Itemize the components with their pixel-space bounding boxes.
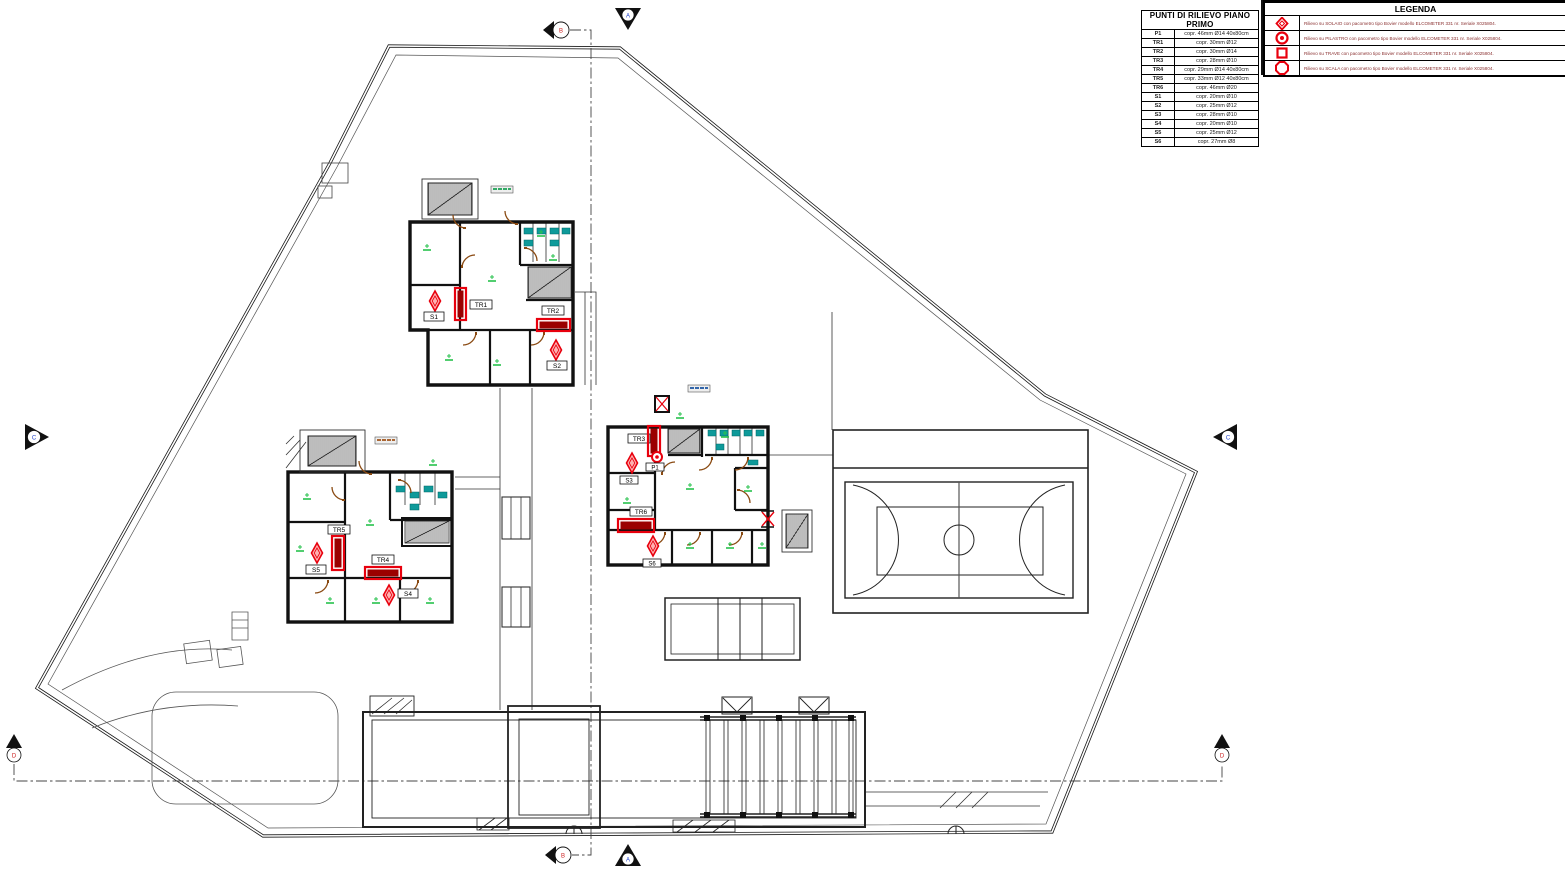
svg-text:D: D [12, 754, 17, 760]
tr2-label: TR2 [547, 308, 560, 315]
section-marker-d-right: D [1214, 734, 1230, 762]
s6-label: S6 [648, 562, 656, 568]
tr6-label: TR6 [635, 509, 648, 516]
legend-item-text: Rilievo su PILASTRO con pacometro tipo B… [1300, 36, 1565, 41]
table-row: S2copr. 25mm Ø12 [1142, 102, 1259, 111]
section-marker-a-top: A [615, 8, 641, 30]
svg-text:D: D [1220, 754, 1225, 760]
svg-text:C: C [32, 436, 37, 442]
section-marker-a-bottom: A [615, 844, 641, 866]
building-top [410, 179, 573, 385]
pilastro-circle-symbol [1265, 31, 1300, 45]
table-row: S5copr. 25mm Ø12 [1142, 129, 1259, 138]
bath-fixtures-middle [708, 430, 764, 465]
table-row: P1copr. 46mm Ø14 40x80cm [1142, 30, 1259, 39]
s2-label: S2 [553, 363, 561, 370]
svg-text:C: C [1226, 436, 1231, 442]
s5-label: S5 [312, 567, 320, 574]
table-row: S6copr. 27mm Ø8 [1142, 138, 1259, 147]
svg-text:A: A [626, 858, 630, 864]
section-marker-c-right: C [1213, 424, 1237, 450]
tr1-label: TR1 [475, 302, 488, 309]
survey-points-middle: TR3 P1 S3 TR6 S6 [618, 426, 664, 568]
basketball-court [833, 430, 1088, 613]
svg-text:B: B [561, 854, 565, 860]
legend-title: LEGENDA [1265, 0, 1565, 16]
survey-points-table: PUNTI DI RILIEVO PIANO PRIMO P1copr. 46m… [1141, 10, 1259, 147]
table-row: S3copr. 28mm Ø10 [1142, 111, 1259, 120]
s3-label: S3 [625, 479, 633, 485]
table-row: TR4copr. 29mm Ø14 40x80cm [1142, 66, 1259, 75]
section-marker-d-left: D [6, 734, 22, 762]
table-row: TR2copr. 30mm Ø14 [1142, 48, 1259, 57]
table-row: TR5copr. 33mm Ø12 40x80cm [1142, 75, 1259, 84]
svg-text:A: A [626, 14, 630, 20]
svg-text:B: B [559, 29, 563, 35]
table-row: S1copr. 20mm Ø10 [1142, 93, 1259, 102]
section-markers: A A B B C C [6, 8, 1237, 866]
table-row: TR1copr. 30mm Ø12 [1142, 39, 1259, 48]
tr3-label: TR3 [633, 436, 646, 443]
survey-table-title: PUNTI DI RILIEVO PIANO PRIMO [1142, 11, 1259, 30]
trave-square-symbol [1265, 46, 1300, 60]
bottom-building [363, 696, 964, 834]
section-marker-b-bottom: B [545, 846, 571, 864]
solaio-diamond-symbol [1265, 16, 1300, 30]
bath-fixtures-left [396, 486, 447, 510]
tr5-label: TR5 [333, 527, 346, 534]
site-plan-drawing: S1 TR1 TR2 S2 [0, 0, 1565, 872]
table-row: TR6copr. 46mm Ø20 [1142, 84, 1259, 93]
site-boundary [37, 46, 1196, 836]
p1-label: P1 [651, 466, 659, 472]
shed [665, 598, 800, 660]
legend-row: Rilievo su TRAVE con pacometro tipo Bovi… [1265, 46, 1565, 61]
legend-row: Rilievo su SCALA con pacometro tipo Bovi… [1265, 61, 1565, 76]
building-middle [608, 385, 812, 565]
section-marker-c-left: C [25, 424, 49, 450]
building-left [286, 430, 452, 622]
section-marker-b-top: B [543, 21, 569, 39]
legend-item-text: Rilievo su TRAVE con pacometro tipo Bovi… [1300, 51, 1565, 56]
scala-octagon-symbol [1265, 61, 1300, 75]
table-row: TR3copr. 28mm Ø10 [1142, 57, 1259, 66]
cad-sheet: S1 TR1 TR2 S2 [0, 0, 1565, 872]
section-axis-lines [14, 30, 1222, 855]
legend-item-text: Rilievo su SCALA con pacometro tipo Bovi… [1300, 66, 1565, 71]
tr4-label: TR4 [377, 557, 390, 564]
table-row: S4copr. 20mm Ø10 [1142, 120, 1259, 129]
pergola [700, 715, 856, 818]
legend-item-text: Rilievo su SOLAIO con pacometro tipo Bov… [1300, 21, 1565, 26]
legend-row: Rilievo su PILASTRO con pacometro tipo B… [1265, 31, 1565, 46]
legend-row: Rilievo su SOLAIO con pacometro tipo Bov… [1265, 16, 1565, 31]
legend: LEGENDA Rilievo su SOLAIO con pacometro … [1263, 0, 1565, 77]
bath-fixtures-top [524, 228, 570, 246]
s1-label: S1 [430, 314, 438, 321]
s4-label: S4 [404, 591, 412, 598]
driveway [62, 612, 338, 804]
